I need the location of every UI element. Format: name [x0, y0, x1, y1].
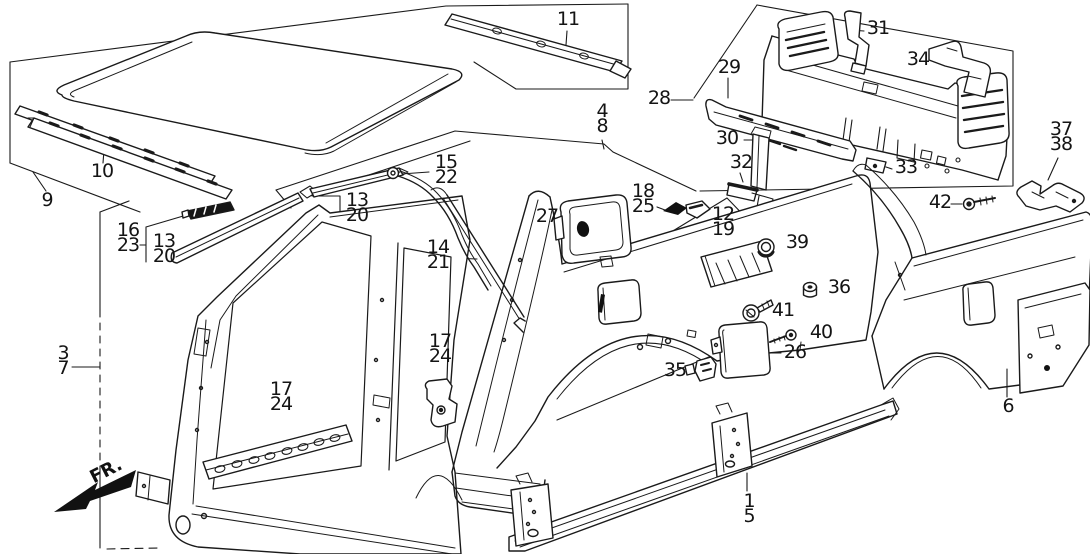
part-number: 28	[644, 91, 674, 106]
part-callout-9: 9	[32, 193, 62, 208]
part-callout-41: 41	[768, 303, 798, 318]
part-callout-29: 29	[714, 60, 744, 75]
part-callout-34: 34	[903, 52, 933, 67]
part-number: 24	[267, 397, 295, 412]
part-number: 8	[588, 119, 616, 134]
part-number: 41	[768, 303, 798, 318]
part-callout-15-22: 15 22	[432, 155, 460, 185]
part-number: 40	[806, 325, 836, 340]
quarter-section-art	[452, 175, 878, 517]
part-number: 5	[735, 509, 763, 524]
part-callout-40: 40	[806, 325, 836, 340]
clip-33-art	[865, 158, 886, 173]
part-number: 20	[150, 249, 178, 264]
part-number: 38	[1047, 137, 1075, 152]
part-callout-4-8: 4 8	[588, 104, 616, 134]
part-number: 25	[629, 199, 657, 214]
part-number: 7	[49, 361, 77, 376]
part-callout-13-20-left: 13 20	[150, 234, 178, 264]
part-callout-26: 26	[780, 345, 810, 360]
part-callout-6: 6	[993, 399, 1023, 414]
part-callout-30: 30	[712, 131, 742, 146]
bolt-42-art	[964, 196, 996, 210]
part-number: 22	[432, 170, 460, 185]
part-callout-3-7: 3 7	[49, 346, 77, 376]
part-number: 21	[424, 255, 452, 270]
part-callout-42: 42	[925, 195, 955, 210]
part-callout-39: 39	[782, 235, 812, 250]
part-number: 39	[782, 235, 812, 250]
rear-rail-11-art	[445, 14, 631, 78]
part-callout-18-25: 18 25	[629, 184, 657, 214]
sill-panel-art	[509, 398, 899, 551]
part-callout-37-38: 37 38	[1047, 122, 1075, 152]
part-number: 20	[343, 208, 371, 223]
part-number: 23	[114, 238, 142, 253]
part-callout-12-19: 12 19	[709, 207, 737, 237]
part-callout-28: 28	[644, 91, 674, 106]
fuel-adapter-27-art	[554, 195, 631, 267]
part-callout-13-20-right: 13 20	[343, 193, 371, 223]
part-callout-1-5: 1 5	[735, 494, 763, 524]
part-callout-14-21: 14 21	[424, 240, 452, 270]
part-callout-10: 10	[87, 164, 117, 179]
part-number: 24	[426, 349, 454, 364]
part-callout-17-24-door: 17 24	[267, 382, 295, 412]
fuel-lid-26-art	[711, 322, 770, 378]
part-number: 11	[553, 12, 583, 27]
bracket-37-38-art	[1017, 181, 1084, 212]
part-number: 9	[32, 193, 62, 208]
part-number: 32	[726, 155, 756, 170]
part-callout-27: 27	[532, 209, 562, 224]
part-number: 26	[780, 345, 810, 360]
part-number: 42	[925, 195, 955, 210]
part-number: 29	[714, 60, 744, 75]
part-number: 35	[660, 363, 690, 378]
part-callout-16-23: 16 23	[114, 223, 142, 253]
part-number: 31	[863, 21, 893, 36]
clip-18-25-art	[663, 201, 710, 218]
part-number: 36	[824, 280, 854, 295]
part-callout-36: 36	[824, 280, 854, 295]
part-number: 30	[712, 131, 742, 146]
parts-diagram-artwork	[0, 0, 1090, 554]
part-callout-11: 11	[553, 12, 583, 27]
part-callout-32: 32	[726, 155, 756, 170]
roof-panel-art	[57, 32, 462, 155]
molding-16-23-art	[182, 202, 234, 219]
part-number: 19	[709, 222, 737, 237]
part-number: 27	[532, 209, 562, 224]
grommet-39-art	[758, 239, 774, 256]
part-number: 33	[891, 160, 921, 175]
front-rail-10-art	[28, 118, 232, 199]
part-number: 6	[993, 399, 1023, 414]
part-callout-33: 33	[891, 160, 921, 175]
part-number: 34	[903, 52, 933, 67]
parts-diagram: 9 10 11 4 8 28 29 31 34 30 32 33 37 38 4…	[0, 0, 1090, 554]
part-number: 10	[87, 164, 117, 179]
part-callout-31: 31	[863, 21, 893, 36]
part-callout-35: 35	[660, 363, 690, 378]
part-callout-17-24-bracket: 17 24	[426, 334, 454, 364]
